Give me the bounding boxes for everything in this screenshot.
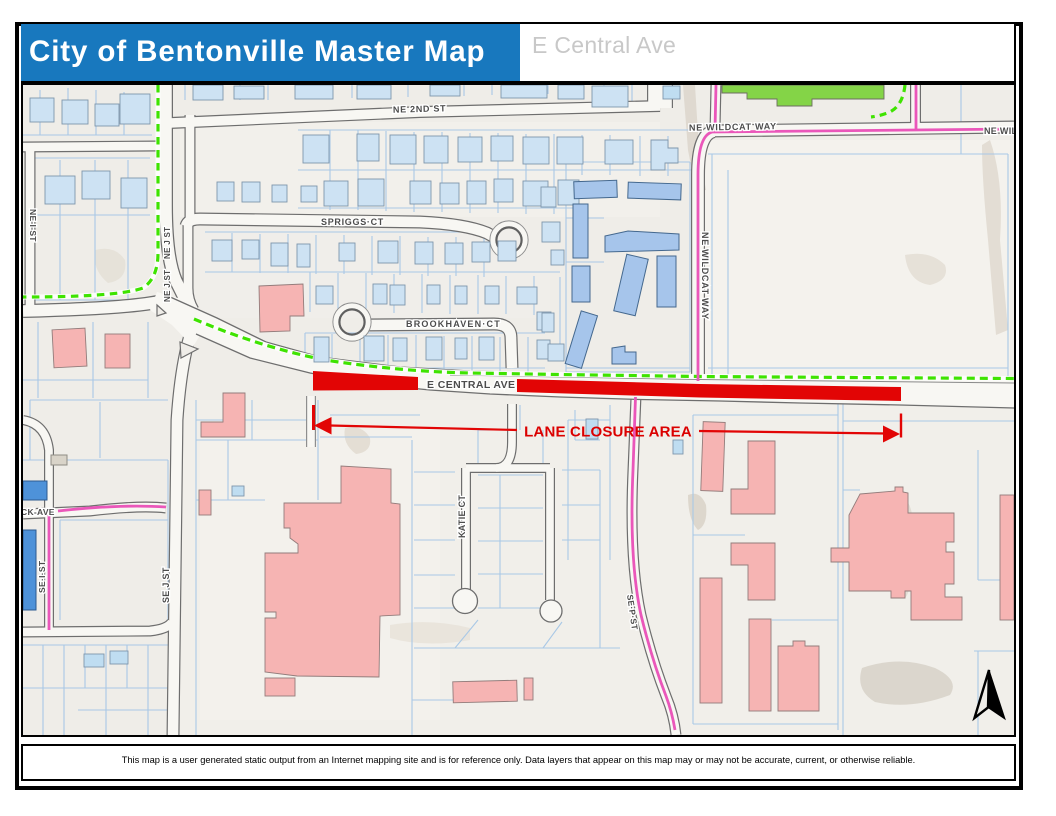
svg-text:CK-AVE: CK-AVE bbox=[23, 507, 55, 517]
svg-text:SE J ST: SE J ST bbox=[161, 567, 171, 603]
svg-text:BROOKHAVEN·CT: BROOKHAVEN·CT bbox=[406, 319, 501, 329]
svg-text:KATIE CT: KATIE CT bbox=[457, 495, 467, 538]
svg-text:NE J ST: NE J ST bbox=[163, 227, 172, 259]
svg-text:LANE CLOSURE AREA: LANE CLOSURE AREA bbox=[524, 424, 692, 441]
svg-text:SPRIGGS·CT: SPRIGGS·CT bbox=[321, 217, 384, 227]
svg-text:NE WIL: NE WIL bbox=[984, 126, 1014, 136]
svg-text:NE 2ND ST: NE 2ND ST bbox=[393, 103, 447, 114]
svg-text:E CENTRAL AVE: E CENTRAL AVE bbox=[427, 379, 515, 391]
svg-text:NE-I-ST: NE-I-ST bbox=[28, 209, 38, 242]
svg-text:NE WILDCAT WAY: NE WILDCAT WAY bbox=[689, 121, 777, 133]
svg-text:SE·I·ST: SE·I·ST bbox=[37, 560, 47, 593]
svg-text:NE WILDCAT WAY: NE WILDCAT WAY bbox=[700, 232, 710, 320]
svg-text:NE J ST: NE J ST bbox=[163, 270, 172, 302]
